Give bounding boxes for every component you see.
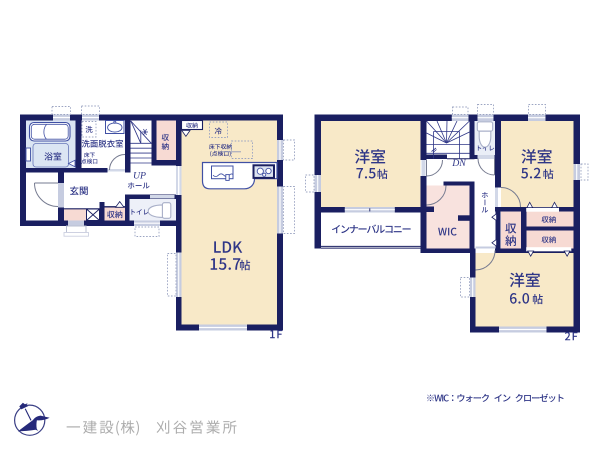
svg-text:DN: DN bbox=[451, 158, 466, 169]
svg-text:UP: UP bbox=[133, 171, 146, 182]
